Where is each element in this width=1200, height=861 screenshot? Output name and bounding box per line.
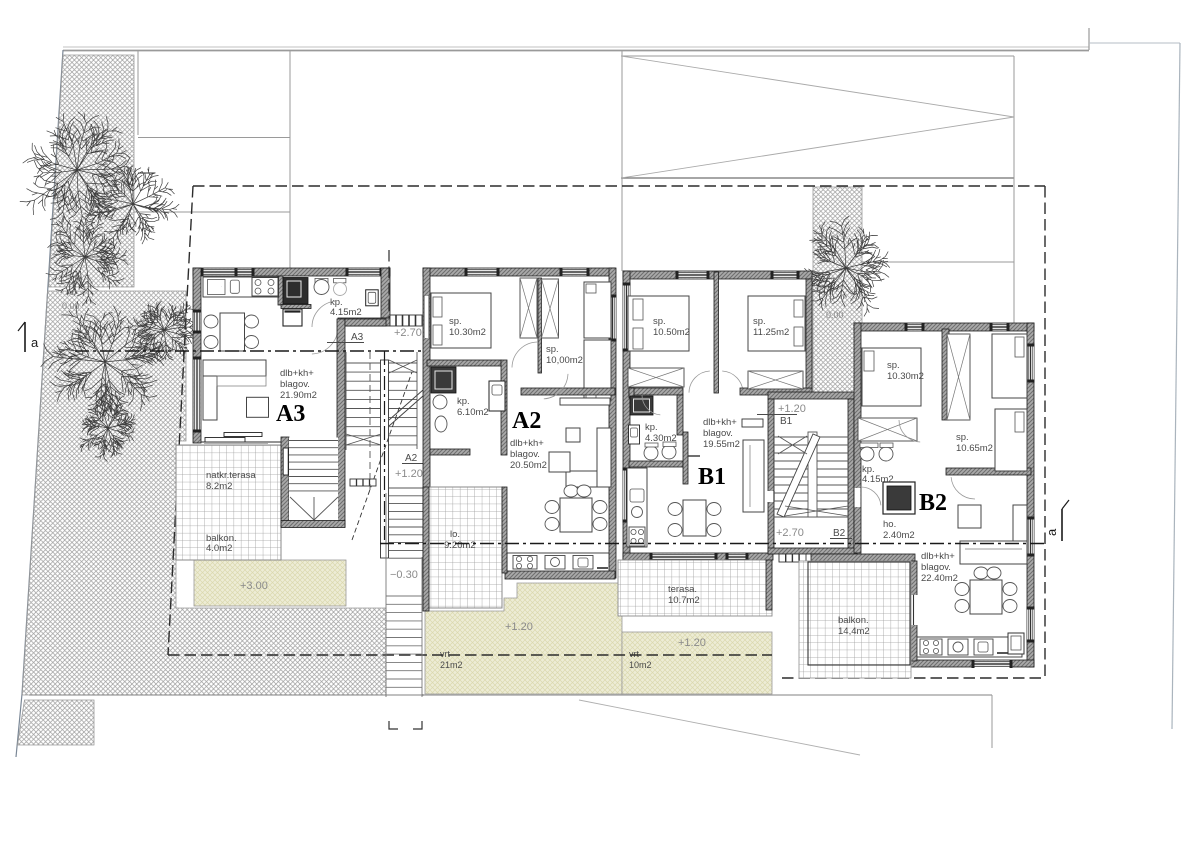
svg-text:+1.20: +1.20	[395, 468, 423, 480]
svg-text:+3.00: +3.00	[240, 580, 268, 592]
svg-text:sp.: sp.	[956, 432, 969, 443]
svg-text:vrt: vrt	[440, 649, 450, 659]
svg-text:kp.: kp.	[645, 422, 658, 433]
svg-text:blagov.: blagov.	[703, 428, 733, 439]
svg-text:B2: B2	[833, 528, 846, 539]
svg-text:sp.: sp.	[753, 316, 766, 327]
svg-text:blagov.: blagov.	[280, 379, 310, 390]
svg-text:10.7m2: 10.7m2	[668, 595, 700, 606]
svg-text:sp.: sp.	[546, 344, 559, 355]
svg-text:lo.: lo.	[450, 529, 460, 540]
svg-text:blagov.: blagov.	[921, 562, 951, 573]
svg-text:10.30m2: 10.30m2	[449, 327, 486, 338]
svg-text:−0.30: −0.30	[390, 569, 418, 581]
svg-text:21m2: 21m2	[440, 660, 463, 670]
svg-text:+2.70: +2.70	[776, 527, 804, 539]
svg-text:+1.20: +1.20	[778, 403, 806, 415]
svg-text:a: a	[31, 335, 39, 350]
svg-text:terasa.: terasa.	[668, 584, 697, 595]
svg-text:11.25m2: 11.25m2	[753, 327, 789, 338]
svg-text:6.10m2: 6.10m2	[457, 407, 489, 418]
svg-text:dlb+kh+: dlb+kh+	[280, 368, 314, 379]
svg-text:+1.20: +1.20	[505, 621, 533, 633]
svg-text:10.65m2: 10.65m2	[956, 443, 993, 454]
svg-text:dlb+kh+: dlb+kh+	[921, 551, 955, 562]
svg-text:20.50m2: 20.50m2	[510, 460, 547, 471]
svg-text:10,00m2: 10,00m2	[546, 355, 583, 366]
svg-text:19.55m2: 19.55m2	[703, 439, 740, 450]
svg-text:a: a	[1044, 528, 1059, 536]
svg-text:B1: B1	[698, 464, 726, 490]
svg-text:balkon.: balkon.	[838, 615, 869, 626]
svg-text:sp.: sp.	[449, 316, 462, 327]
svg-text:+1.20: +1.20	[678, 637, 706, 649]
svg-text:10m2: 10m2	[629, 660, 652, 670]
svg-text:14,4m2: 14,4m2	[838, 626, 870, 637]
svg-text:21.90m2: 21.90m2	[280, 390, 317, 401]
svg-text:sp.: sp.	[887, 360, 900, 371]
svg-text:4.0m2: 4.0m2	[206, 543, 232, 554]
svg-text:8.2m2: 8.2m2	[206, 481, 232, 492]
svg-text:4.15m2: 4.15m2	[862, 474, 894, 485]
svg-text:sp.: sp.	[653, 316, 666, 327]
svg-text:A2: A2	[512, 408, 541, 434]
svg-text:blagov.: blagov.	[510, 449, 540, 460]
svg-text:0.00: 0.00	[826, 310, 844, 320]
svg-text:9.20m2: 9.20m2	[444, 540, 476, 551]
svg-text:10.30m2: 10.30m2	[887, 371, 924, 382]
svg-text:kp.: kp.	[457, 396, 470, 407]
svg-text:ho.: ho.	[883, 519, 896, 530]
svg-text:22.40m2: 22.40m2	[921, 573, 958, 584]
svg-text:dlb+kh+: dlb+kh+	[510, 438, 544, 449]
svg-text:A2: A2	[405, 453, 418, 464]
svg-text:B1: B1	[780, 416, 793, 427]
svg-text:natkr.terasa: natkr.terasa	[206, 470, 256, 481]
svg-text:A3: A3	[351, 332, 364, 343]
svg-text:10.50m2: 10.50m2	[653, 327, 690, 338]
svg-text:dlb+kh+: dlb+kh+	[703, 417, 737, 428]
svg-text:2.40m2: 2.40m2	[883, 530, 915, 541]
svg-text:4.30m2: 4.30m2	[645, 433, 677, 444]
svg-text:4.15m2: 4.15m2	[330, 307, 362, 318]
svg-text:B2: B2	[919, 490, 947, 516]
svg-text:vrt: vrt	[629, 649, 639, 659]
svg-text:A3: A3	[276, 401, 305, 427]
svg-text:+2.70: +2.70	[394, 327, 422, 339]
